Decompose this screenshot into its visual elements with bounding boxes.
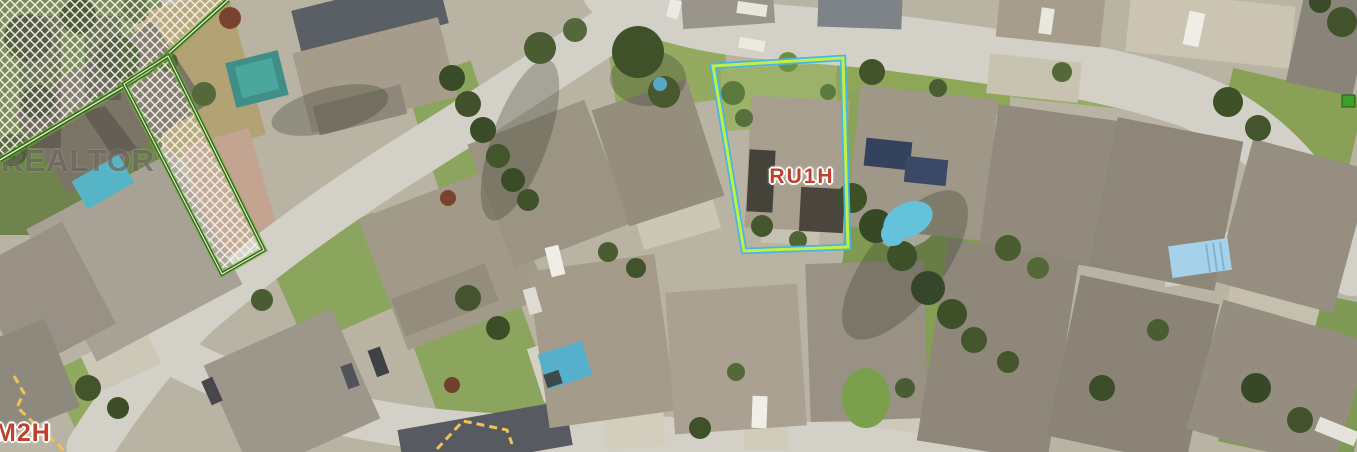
- zoning-label-m2h: M2H: [0, 419, 51, 448]
- map-viewport: REALTOR®: [0, 0, 1357, 452]
- aerial-imagery-layer[interactable]: [0, 0, 1357, 452]
- zoning-label-ru1h: RU1H: [756, 165, 848, 189]
